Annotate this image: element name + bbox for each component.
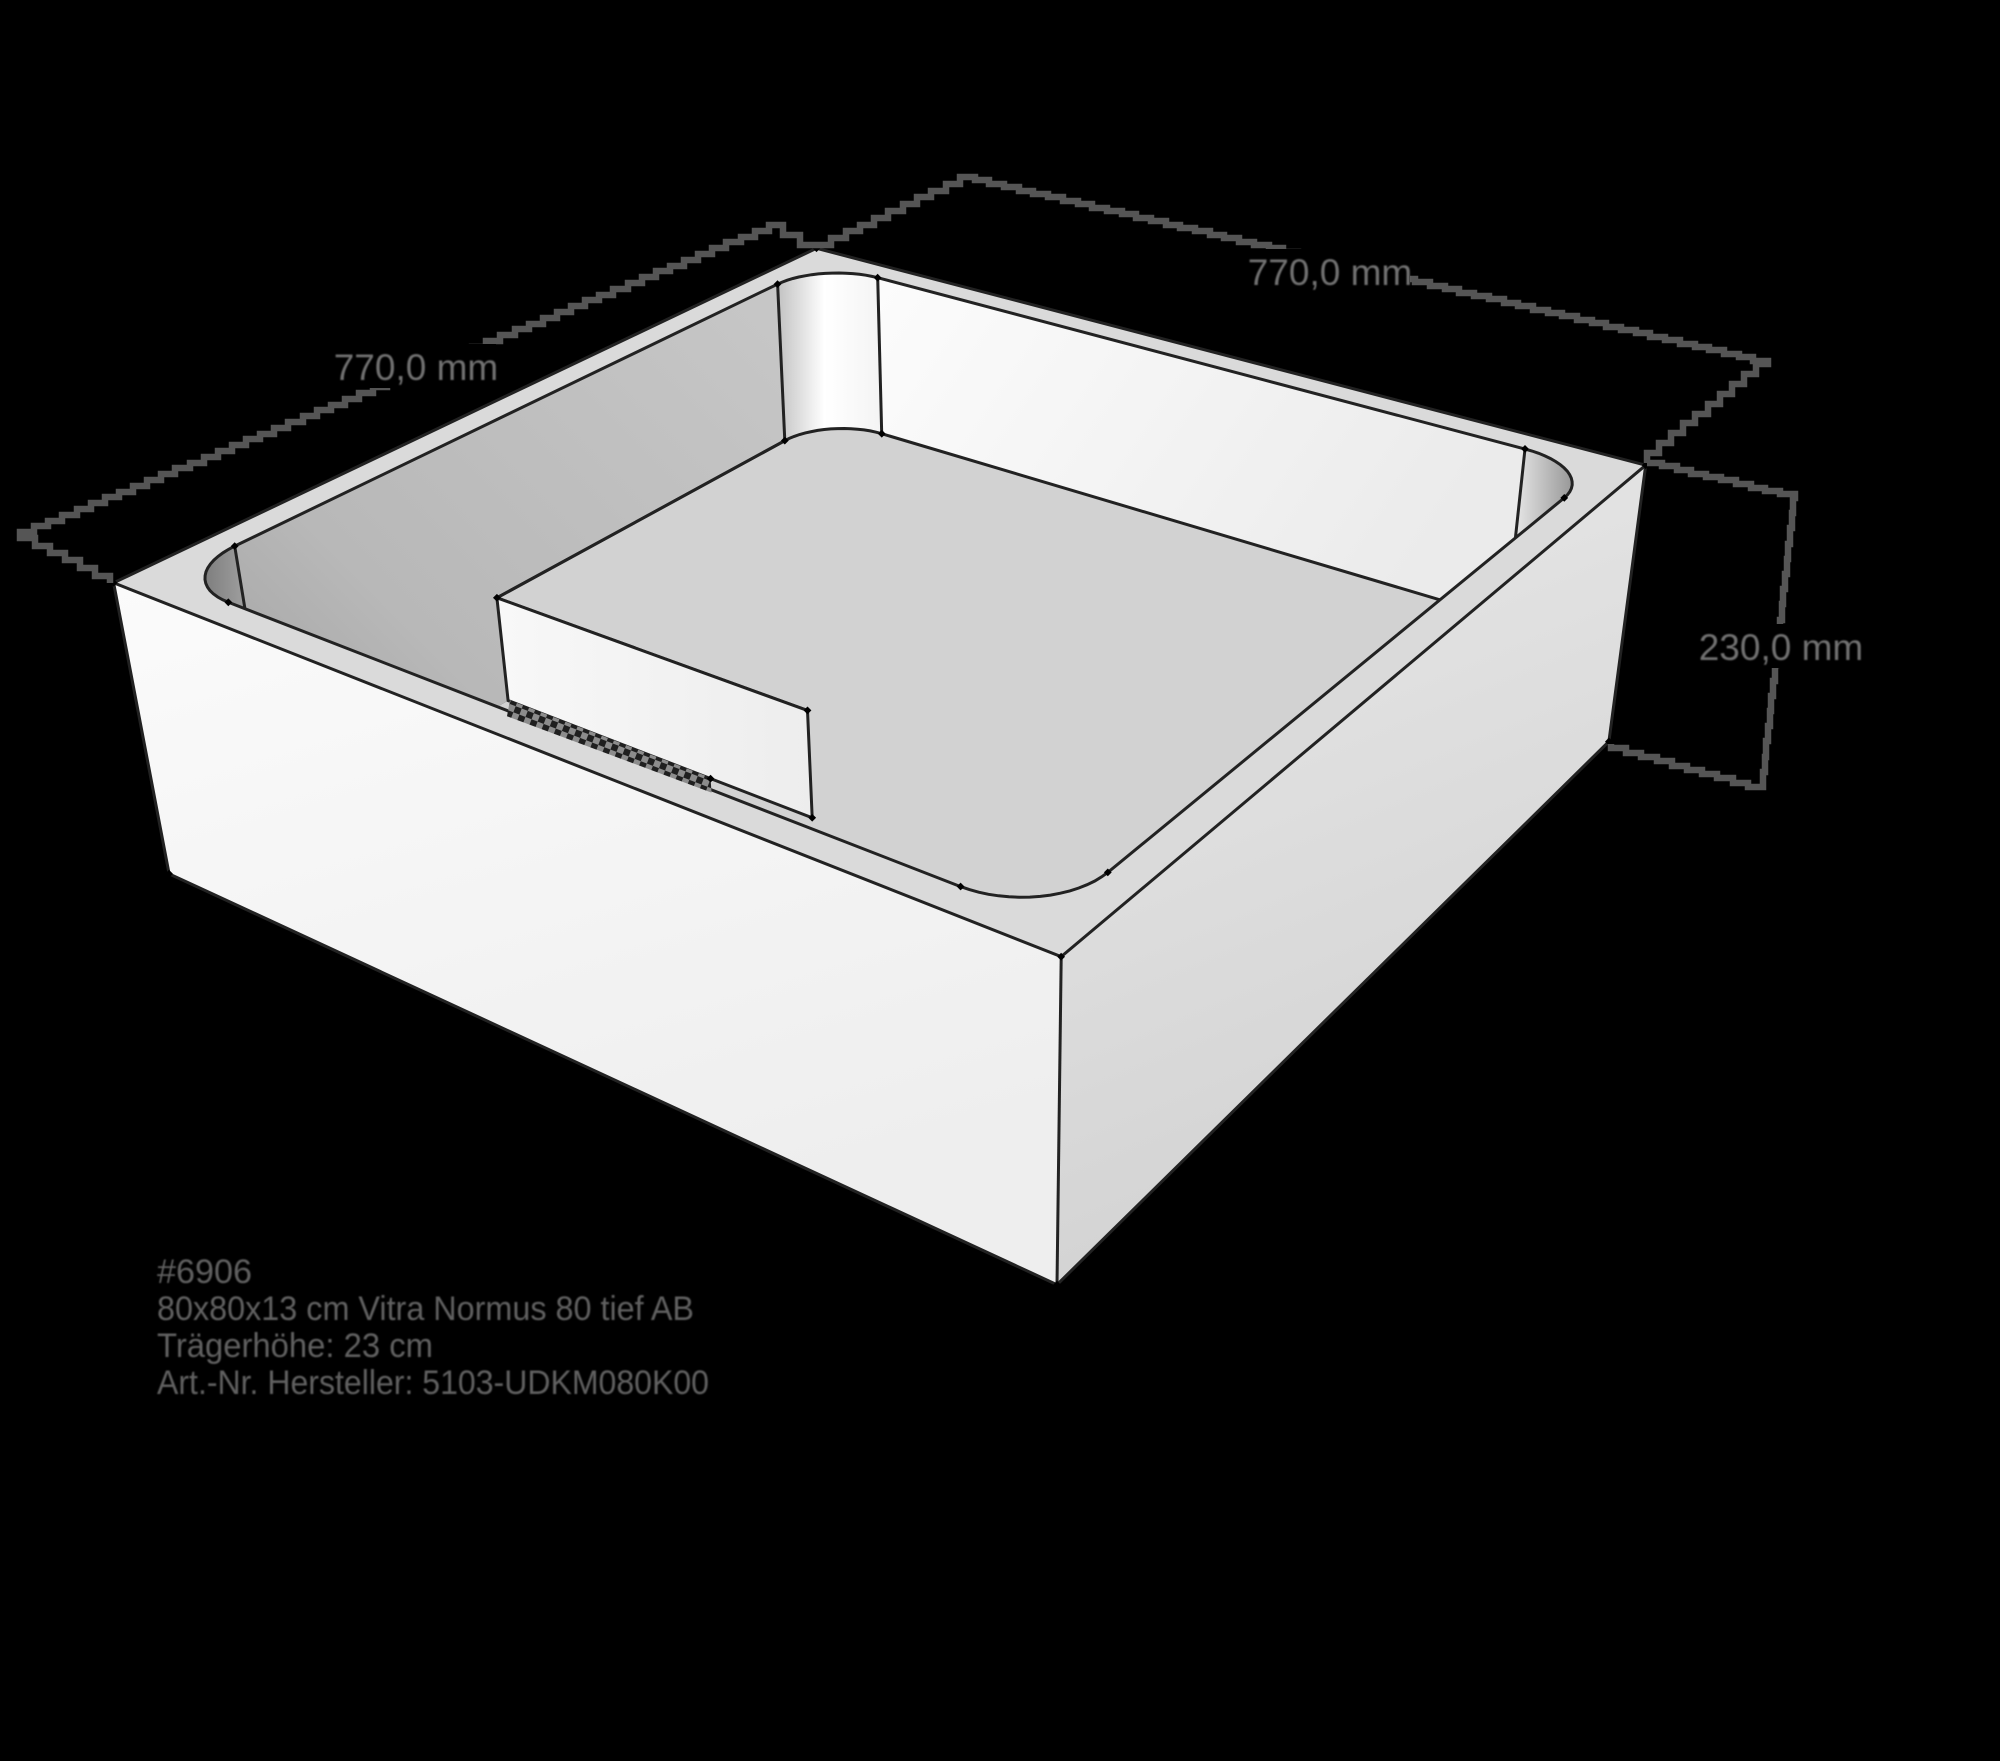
svg-text:#6906: #6906 <box>157 1253 252 1291</box>
svg-text:Trägerhöhe: 23 cm: Trägerhöhe: 23 cm <box>157 1327 433 1365</box>
svg-text:Art.-Nr. Hersteller: 5103-UDKM: Art.-Nr. Hersteller: 5103-UDKM080K00 <box>157 1364 709 1402</box>
svg-text:770,0 mm: 770,0 mm <box>334 347 499 388</box>
svg-text:770,0 mm: 770,0 mm <box>1248 252 1413 293</box>
svg-text:80x80x13 cm Vitra Normus 80 ti: 80x80x13 cm Vitra Normus 80 tief AB <box>157 1290 694 1328</box>
svg-text:230,0 mm: 230,0 mm <box>1699 627 1864 668</box>
